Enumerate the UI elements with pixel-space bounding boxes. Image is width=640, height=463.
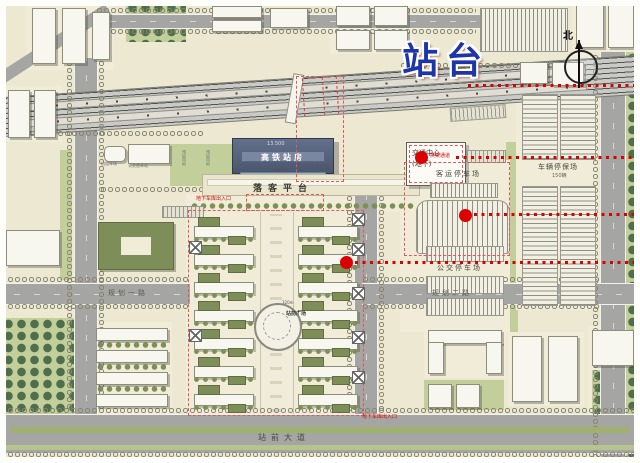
depot-label: 车辆停保场 [538, 164, 578, 171]
north-circle [564, 50, 598, 84]
callout-line-parking [474, 213, 640, 216]
north-label: 北 [563, 32, 573, 42]
hatched-lot [480, 8, 568, 52]
building [96, 394, 168, 407]
road-west-label: 规划一路 [108, 290, 148, 297]
callout-line-commercial [355, 261, 640, 264]
avenue-label: 站前大道 [258, 434, 310, 442]
station-roof-elevation: 13.500 [267, 142, 285, 147]
building [428, 342, 444, 374]
red-dashed-area [246, 194, 324, 211]
stair-symbol [352, 371, 365, 384]
building [548, 336, 578, 402]
parking-stalls [426, 298, 504, 316]
building [608, 4, 634, 48]
building [96, 372, 168, 385]
plaza-dimension: 320m [282, 301, 294, 305]
building [212, 20, 262, 32]
callout-transfer-label: 换乘通道 [430, 154, 450, 159]
taxi-stand-building [104, 146, 126, 162]
east-verge-trees [626, 52, 640, 460]
garage-entry-west-label: 地下车库出入口 [196, 197, 231, 202]
callout-line-platform [468, 84, 636, 87]
building [270, 8, 308, 28]
courtyard [121, 237, 151, 255]
building [456, 384, 480, 408]
dropoff-label: 落客平台 [253, 185, 313, 194]
reserve-label-a: 预留用地 [182, 150, 186, 166]
avenue-verge [0, 445, 640, 450]
building [34, 90, 56, 138]
building [512, 336, 542, 402]
stair-symbol [352, 287, 365, 300]
facility-taxi-label: 出租车场 [101, 162, 117, 166]
road-west-segment [0, 283, 190, 305]
callout-line-transfer [456, 156, 640, 159]
depot-stalls [560, 186, 596, 306]
building [92, 12, 110, 60]
plaza-label: 站前广场 [286, 312, 306, 317]
building [374, 6, 408, 26]
tree-row [0, 451, 640, 458]
garage-entry-south-label: 地下车库出入口 [362, 415, 397, 420]
road-east-label: 规划二路 [432, 290, 472, 297]
passenger-parking-label: 客运停车场 [436, 171, 481, 178]
bus-terminus-building [128, 144, 170, 164]
building [486, 342, 502, 374]
avenue-median [10, 427, 630, 433]
tree-row [378, 188, 385, 412]
building [32, 8, 56, 64]
building [62, 8, 86, 64]
callout-dot-commercial [340, 256, 353, 269]
building [520, 62, 548, 84]
tree-row [66, 60, 73, 410]
depot-capacity: 150辆 [552, 174, 567, 179]
building [8, 90, 30, 138]
bus-parking-label: 公交停车场 [437, 265, 482, 272]
stair-symbol [189, 329, 202, 342]
north-needle-tip [575, 40, 583, 49]
callout-dot-parking [459, 209, 472, 222]
platform-callout-text: 站台 [402, 44, 490, 80]
callout-dot-transfer [415, 151, 428, 164]
tree-row [96, 28, 476, 35]
stair-symbol [352, 213, 365, 226]
stair-symbol [352, 331, 365, 344]
tree-dots [96, 385, 166, 392]
tree-row [0, 303, 188, 310]
depot-stalls [522, 186, 558, 306]
building [592, 330, 634, 366]
building [6, 230, 60, 266]
building [96, 328, 168, 341]
dropoff-elevation: 0.500 [316, 166, 330, 171]
reserve-label-b: 预留用地 [206, 150, 210, 166]
facility-bus-label: 公交首末站 [128, 164, 148, 168]
stair-symbol [352, 243, 365, 256]
depot-stalls [560, 94, 596, 160]
stair-symbol [189, 241, 202, 254]
road-vertical-east [600, 52, 626, 463]
building [96, 350, 168, 363]
tree-row [0, 276, 188, 283]
building [212, 6, 262, 18]
building [336, 6, 370, 26]
depot-stalls [522, 94, 558, 160]
building-olive-court [98, 222, 174, 270]
north-arrow: 北 [564, 50, 598, 84]
tree-dots [96, 363, 166, 370]
building [428, 384, 452, 408]
building [336, 30, 370, 50]
dropoff-dimension: 163m [274, 168, 288, 173]
tree-dots [96, 341, 166, 348]
site-plan-canvas: 出租车场 公交首末站 预留用地 预留用地 规划一路 规划二路 [0, 0, 640, 463]
